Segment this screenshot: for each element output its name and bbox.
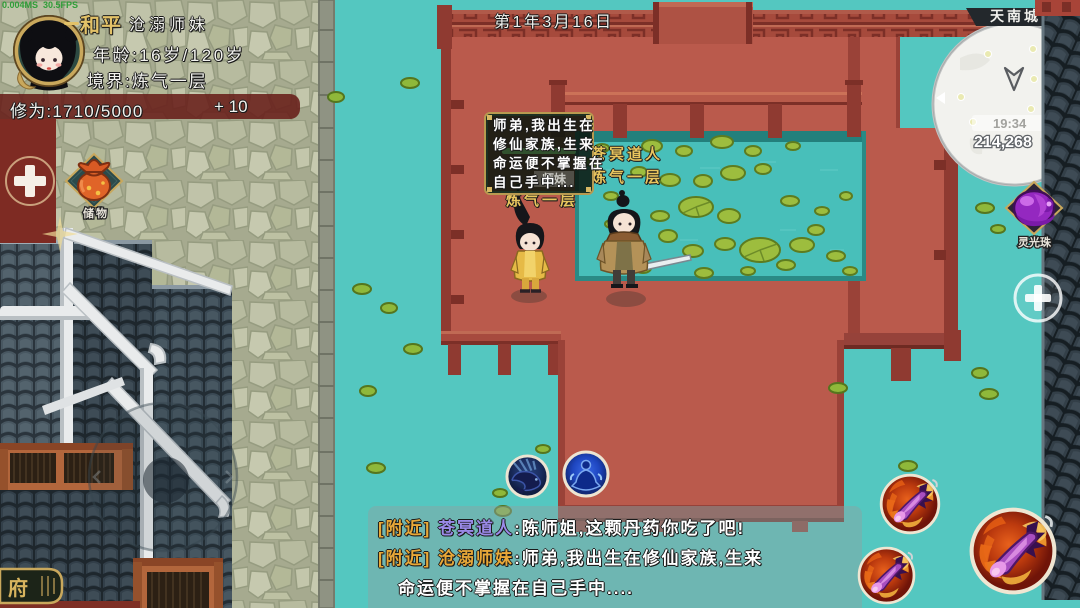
svg-text:19:34: 19:34 — [993, 116, 1027, 131]
svg-text:灵光珠: 灵光珠 — [1018, 235, 1052, 249]
svg-text:府: 府 — [8, 576, 28, 600]
svg-text:214,268: 214,268 — [974, 134, 1032, 151]
svg-text:储物: 储物 — [83, 206, 109, 220]
svg-text:天南城: 天南城 — [990, 8, 1041, 24]
